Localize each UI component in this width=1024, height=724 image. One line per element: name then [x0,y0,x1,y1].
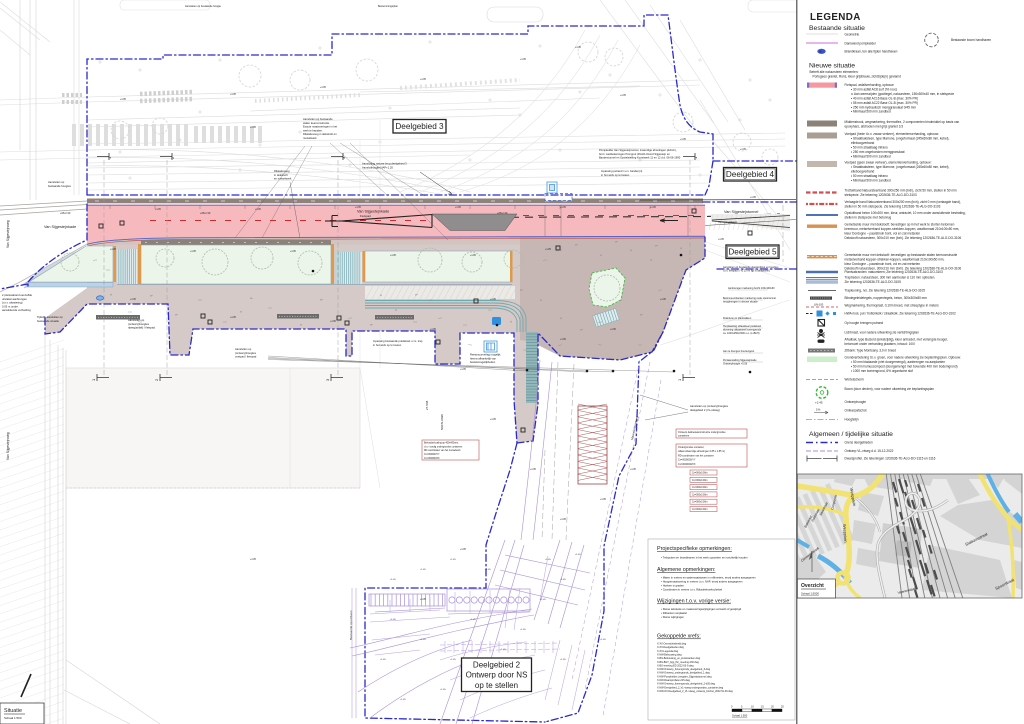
svg-text:+1.05: +1.05 [560,339,567,341]
svg-text:Situatie: Situatie [4,708,22,714]
svg-text:Damwand pompkelder: Damwand pompkelder [845,41,876,45]
svg-text:aansluitende verharding: aansluitende verharding [2,308,31,312]
svg-text:Brandkraan, ten alle tijden ha: Brandkraan, ten alle tijden handhaven [845,50,898,54]
svg-text:Reetonuurverlag mogelijk: Reetonuurverlag mogelijk [470,353,501,357]
svg-text:Voetpad (geen zwaar verkeer),: Voetpad (geen zwaar verkeer), elementenv… [845,161,932,165]
svg-text:+1.05: +1.05 [230,317,237,319]
svg-text:Aansluiten op (ontwerp)hoogtes: Aansluiten op (ontwerp)hoogtes [690,404,729,408]
svg-text:Trottoirband Natuursteenband 3: Trottoirband Natuursteenband 300x250 mm … [845,189,958,193]
svg-text:Portaanstelling Sijgestejnkade: Portaanstelling Sijgestejnkade [723,359,757,362]
svg-text:Van Sijgestejntunnel: Van Sijgestejntunnel [724,210,758,214]
svg-text:+1.05: +1.05 [110,249,117,251]
svg-text:RD-coordinaten van het metselw: RD-coordinaten van het metselwerk [424,449,461,452]
svg-text:+1.05: +1.05 [560,519,567,521]
svg-text:stalen keerconstructie.: stalen keerconstructie. [303,121,330,125]
svg-text:+1.05: +1.05 [460,369,467,371]
svg-text:Deelgebied 3: Deelgebied 3 [395,122,444,131]
svg-text:• Coordinaten in meters t.o.v: • Coordinaten in meters t.o.v. Rijksdrie… [661,588,722,592]
svg-text:• 50 mm straatlaag infrano: • 50 mm straatlaag infrano [851,174,888,178]
svg-text:X-BG-meeting ED 2022-03-9.dwg: X-BG-meeting ED 2022-03-9.dwg [657,664,694,667]
svg-text:Aansluiten op bestaande: Aansluiten op bestaande [303,117,333,121]
svg-text:Van Sijgestejnweg: Van Sijgestejnweg [6,432,10,460]
svg-text:+1.45: +1.45 [450,559,456,561]
svg-text:Betreft alle natuursteen eleme: Betreft alle natuursteen elementen: [810,70,859,74]
svg-text:X-NW-Bebouwing.dwg: X-NW-Bebouwing.dwg [657,653,682,656]
svg-text:+1.45: +1.45 [545,559,551,561]
svg-text:Van Sijgestejnweg: Van Sijgestejnweg [6,220,10,248]
svg-text:27-568: 27-568 [425,400,429,410]
svg-text:(ontwerp)hoogtes: (ontwerp)hoogtes [128,322,150,326]
svg-text:+1.05: +1.05 [355,207,362,209]
svg-text:1: 1 [677,378,682,381]
svg-text:Maanderbuurtweg: Maanderbuurtweg [630,415,639,440]
svg-text:Verlaagde band Natuursteenband: Verlaagde band Natuursteenband 300x200 m… [845,200,962,204]
svg-text:+1.05: +1.05 [290,251,297,253]
svg-text:+1.05: +1.05 [430,329,437,331]
svg-text:Pompkelder Van Sijgestejntunne: Pompkelder Van Sijgestejntunnel, inwendi… [599,148,677,152]
svg-text:Ondergrondse container,: Ondergrondse container, [678,446,705,449]
svg-text:X-NW-Dwarsprofielen-NS.dwg: X-NW-Dwarsprofielen-NS.dwg [657,679,691,682]
svg-text:terugbrengen in nieuwe situati: terugbrengen in nieuwe situatie [723,301,758,304]
svg-text:Nieuwe situatie: Nieuwe situatie [809,63,855,70]
svg-text:• Hoogtemaatvoering in meters: • Hoogtemaatvoering in meters t.o.v. NAP… [661,580,743,584]
svg-text:Zie tekening 1202636-TE-ALG-DO: Zie tekening 1202636-TE-ALG-DO-3105 [845,280,902,284]
svg-text:• 40 mm asfalt AC16 Base OL-: • 40 mm asfalt AC16 Base OL-B (max. 30% … [851,96,918,100]
svg-text:Op hoogte brengen putrand: Op hoogte brengen putrand [845,321,884,325]
svg-text:• 50 mm straatlaag infrano: • 50 mm straatlaag infrano [851,145,888,149]
svg-text:Dilatatievoeg in dekslooft en: Dilatatievoeg in dekslooft en [303,132,337,136]
svg-text:Deelgebied 5: Deelgebied 5 [728,248,777,257]
svg-text:+1.05: +1.05 [120,99,127,101]
svg-text:Behoudsel paling op 400x400mm,: Behoudsel paling op 400x400mm, [424,443,459,445]
svg-text:Aansluiten op: Aansluiten op [48,180,65,184]
svg-text:keermuur, metselverband koppen: keermuur, metselverband koppen-strekken-… [845,227,960,231]
svg-text:Dekslooft natuursteen, 300x210: Dekslooft natuursteen, 300x210 mm (bxh).… [845,236,962,240]
svg-text:Gekoppelde xrefs:: Gekoppelde xrefs: [657,634,701,640]
svg-text:epoxyhars, afstrooien met grij: epoxyhars, afstrooien met grijs graniet … [845,125,904,129]
svg-text:+1.45: +1.45 [520,629,526,631]
svg-text:Cx=000x0.00m: Cx=000x0.00m [692,502,708,504]
svg-text:Aansluiten op bestaande vloeis: Aansluiten op bestaande vloeistofgoot en… [723,266,779,269]
svg-text:Gemetselde muur met dekslooft:: Gemetselde muur met dekslooft: bevestige… [845,253,958,257]
svg-text:+1.05: +1.05 [470,255,477,257]
svg-text:+1.05: +1.05 [600,499,607,501]
svg-text:+1.05: +1.05 [320,87,327,89]
svg-text:+1.45: +1.45 [420,569,426,571]
svg-text:Overgangsband: Overgangsband [718,220,737,224]
svg-text:• Kleine wijzigingen: • Kleine wijzigingen [661,615,685,619]
svg-text:Projectspecifieke opmerkingen:: Projectspecifieke opmerkingen: [657,546,732,552]
svg-text:+1.05: +1.05 [250,559,257,561]
svg-text:Br: Br [819,49,822,53]
svg-text:Afvalbak, type Buizerd (enkelz: Afvalbak, type Buizerd (enkelzijdig), kl… [845,338,948,342]
svg-text:Algemeen / tijdelijke situatie: Algemeen / tijdelijke situatie [809,431,893,438]
svg-text:metselwerk: metselwerk [303,136,317,140]
svg-text:+1.05: +1.05 [520,59,527,61]
svg-text:Schaal 1:500: Schaal 1:500 [732,714,748,718]
svg-text:• 250 mm hydraulisch menggra: • 250 mm hydraulisch menggranulaat 0/45 … [851,105,916,109]
svg-text:+68-2.30: +68-2.30 [497,211,508,215]
svg-text:0.05 m onder: 0.05 m onder [2,304,18,308]
svg-text:• 50 mm bladaarde (niet door: • 50 mm bladaarde (niet doorgemengd), aa… [851,360,945,364]
svg-text:• 30 mm asfalt AC8 surf 3% r: • 30 mm asfalt AC8 surf 3% rood, [851,87,897,91]
svg-text:Gemetselde muur met dekslooft:: Gemetselde muur met dekslooft: bevestige… [845,223,955,227]
svg-text:Grens deelgebieden: Grens deelgebieden [845,441,874,445]
svg-text:Voetpad (hede t.b.v. zwaar ver: Voetpad (hede t.b.v. zwaar verkeer), ele… [845,132,940,136]
svg-text:Aansluiten op: Aansluiten op [128,318,145,322]
svg-text:Cx=000x0.00m: Cx=000x0.00m [692,473,708,475]
svg-text:Trapleuning, rvs. Zie tekening: Trapleuning, rvs. Zie tekening 1202636-T… [845,289,926,293]
svg-text:+1.05: +1.05 [490,419,497,421]
svg-text:Cx=0000000/YY: Cx=0000000/YY [678,459,696,462]
svg-text:Ontwerphoogte: Ontwerphoogte [845,400,867,404]
svg-text:(ontwerp)hoogtes: (ontwerp)hoogtes [235,351,257,355]
svg-text:+1.45: +1.45 [390,619,396,621]
svg-text:elleboogverband: elleboogverband [851,169,874,173]
svg-text:• Minimaal 500 mm zandbed: • Minimaal 500 mm zandbed [851,110,891,114]
svg-text:+1.45: +1.45 [400,699,406,701]
svg-text:stellen in 50 mm stelspecie. Z: stellen in 50 mm stelspecie. Zie tekenin… [845,205,941,209]
svg-text:+1.05: +1.05 [650,207,657,209]
svg-text:X-NW-Ontwerp_ondergronds_deelg: X-NW-Ontwerp_ondergronds_deelgebied_1.dw… [657,672,710,675]
svg-text:Schaal 1:5000: Schaal 1:5000 [801,592,819,596]
svg-text:Cx=0000000/XX: Cx=0000000/XX [678,463,696,466]
svg-text:+1.45: +1.45 [575,554,581,556]
svg-text:bestekmogelijkheden: bestekmogelijkheden [470,360,496,364]
svg-text:X-XX-Deelgebieden.dwg: X-XX-Deelgebieden.dwg [657,646,684,649]
svg-text:Wijzigingen t.o.v. vorige vers: Wijzigingen t.o.v. vorige versie: [657,599,731,605]
svg-text:en metselwerk: en metselwerk [274,177,292,181]
svg-text:Geometrie: Geometrie [845,32,860,36]
svg-text:Ontwerp door NS: Ontwerp door NS [466,671,528,680]
svg-text:bestaande hoogtes: bestaande hoogtes [48,184,72,188]
svg-text:(t.o.v. afwatering): (t.o.v. afwatering) [2,301,23,305]
svg-text:•• Aan weerszijden (goot: •• Aan weerszijden (goottegel, natuurste… [851,92,954,96]
svg-text:in dekslooft: in dekslooft [274,173,288,177]
svg-text:Bestaande situatie: Bestaande situatie [809,25,865,32]
svg-text:Fietspad, asfaltverharding, op: Fietspad, asfaltverharding, opbouw: [845,83,895,87]
svg-text:Herplaatsing uitlaatsteel putd: Herplaatsing uitlaatsteel putdeksel [723,325,762,328]
svg-text:+2.45: +2.45 [815,401,823,405]
svg-text:op te stellen: op te stellen [475,681,518,690]
svg-text:Aanbrengen markering bocht 100: Aanbrengen markering bocht 100x100x30 [728,287,775,290]
svg-text:Cx=000000/XX: Cx=000000/XX [424,458,440,460]
svg-text:Betonneembanken markering oude: Betonneembanken markering oude spoortunn… [723,297,776,300]
svg-text:Cx=000x0.00m: Cx=000x0.00m [692,509,708,511]
svg-text:• Maten in meters en watermaa: • Maten in meters en watermaatstaven in … [661,576,756,580]
svg-text:uitvlakel aanbrengen: uitvlakel aanbrengen [2,297,27,301]
svg-text:Grondverbetering t.b.v. groen,: Grondverbetering t.b.v. groen, voor nade… [845,356,962,360]
svg-text:X-NW-Ontwerp_bovengronds_deelg: X-NW-Ontwerp_bovengronds_deelgebied_3.dw… [657,668,711,671]
svg-text:• 55 mm asfalt AC22 Base OL-: • 55 mm asfalt AC22 Base OL-B (max. 30% … [851,101,918,105]
svg-text:+1.05: +1.05 [620,95,627,97]
svg-text:Cx=000x0.00m: Cx=000x0.00m [692,480,708,482]
svg-text:+1.05: +1.05 [455,207,462,209]
svg-text:Cx=000000/YY: Cx=000000/YY [424,454,440,456]
svg-text:X-XX-Legenda.dwg: X-XX-Legenda.dwg [657,650,679,653]
svg-text:+1.45: +1.45 [470,619,476,621]
svg-text:werk te bepalen.: werk te bepalen. [303,128,323,132]
svg-text:+1.05: +1.05 [660,299,667,301]
svg-text:Cx=000x0.00m: Cx=000x0.00m [692,494,708,496]
svg-text:X-NW-Pompkelder_bergater_Sijge: X-NW-Pompkelder_bergater_Sijgestejntunne… [657,675,712,678]
svg-text:+1.45: +1.45 [600,639,606,641]
svg-text:• Straatbaksteen, type Marro: • Straatbaksteen, type Marrone, (ongefor… [851,165,949,169]
svg-text:1%: 1% [816,408,821,412]
svg-text:metselverband koppen-strekken-: metselverband koppen-strekken-koppen, wa… [845,257,945,261]
svg-text:+1.45: +1.45 [485,569,491,571]
svg-text:Aansluiting nieuwe brug deelge: Aansluiting nieuwe brug deelgebied 3 [362,162,407,166]
svg-text:Aan te brengen buurtengoot: Aan te brengen buurtengoot [723,350,754,353]
svg-text:+1.05: +1.05 [610,329,617,331]
svg-text:+1.45: +1.45 [440,689,446,691]
svg-text:t.o.v. fietspad x +0.10 en lig: t.o.v. fietspad x +0.10 en ligt in (akkp… [723,270,770,273]
svg-text:+1.05: +1.05 [545,249,552,251]
svg-text:+1.05: +1.05 [680,139,687,141]
svg-text:+1.05: +1.05 [330,321,337,323]
svg-text:+1.05: +1.05 [255,209,262,211]
svg-text:in het werk op te lossen: in het werk op te lossen [601,173,630,177]
svg-text:+1.45: +1.45 [380,659,386,661]
svg-text:voetpad / fietspad: voetpad / fietspad [235,355,257,359]
svg-text:+1.05: +1.05 [740,149,747,151]
svg-text:Bestaande boom handhaven: Bestaande boom handhaven [951,38,991,42]
svg-text:Drainleren in plantvakken: Drainleren in plantvakken [723,317,752,320]
svg-text:hierna afhankelijk van: hierna afhankelijk van [470,356,497,360]
svg-text:Wortelscherm: Wortelscherm [845,378,865,382]
svg-text:Ontwerp VL-vtweg d.d. 15-12-20: Ontwerp VL-vtweg d.d. 15-12-2022 [845,449,894,453]
svg-text:uitlaat uitwendige afmetingen: uitlaat uitwendige afmetingen 0.85 x 1.8… [678,450,725,453]
svg-text:X-XX-Overzichtsbeeld.dwg: X-XX-Overzichtsbeeld.dwg [657,643,687,646]
svg-text:+68-2.30: +68-2.30 [200,211,211,215]
svg-text:RD-coordinaten van het contain: RD-coordinaten van het container [678,454,714,457]
svg-text:containers: containers [678,434,690,437]
svg-text:Fietspad: Fietspad [360,214,371,218]
svg-text:• Trekputten en brandkranen i: • Trekputten en brandkranen in het werk … [661,556,748,560]
svg-text:• Zitbanken verplaatst: • Zitbanken verplaatst [661,611,687,615]
svg-text:Van Sijgestejnkade: Van Sijgestejnkade [357,210,389,214]
svg-text:bestaande situatie: bestaande situatie [37,319,59,323]
svg-text:Ontwerphoogte +0.56: Ontwerphoogte +0.56 [723,363,748,366]
svg-text:+68-2.30: +68-2.30 [60,211,71,215]
svg-text:Traptreden: natuursteen, 300 m: Traptreden: natuursteen, 300 mm aantrede… [845,276,936,280]
svg-text:Schaal 1:500: Schaal 1:500 [4,716,22,720]
svg-text:stellen in stelspecie met beto: stellen in stelspecie met betonrug [845,216,892,220]
svg-text:Algemene opmerkingen:: Algemene opmerkingen: [657,567,715,573]
svg-text:2 plantvakrand eenzelfde: 2 plantvakrand eenzelfde [2,293,33,297]
svg-text:+1.05: +1.05 [490,299,497,301]
svg-text:+1.05: +1.05 [155,209,162,211]
svg-text:Aansluithoogte NAP+1.20: Aansluithoogte NAP+1.20 [362,165,393,169]
svg-text:+1.05: +1.05 [420,79,427,81]
svg-text:• Hoeken in graden: • Hoeken in graden [661,584,684,588]
svg-text:deelgebied 2 (VL-uitweg): deelgebied 2 (VL-uitweg) [690,408,720,412]
svg-text:Overzicht: Overzicht [801,583,824,589]
svg-text:+1.05: +1.05 [575,47,582,49]
svg-text:Aansluiten op: Aansluiten op [235,347,252,351]
svg-text:+1.05: +1.05 [630,469,637,471]
svg-text:+1.05: +1.05 [230,94,237,96]
svg-text:• Straatbaksteen, type Marro: • Straatbaksteen, type Marrone, (ongefor… [851,136,949,140]
svg-text:Deelgebied 2: Deelgebied 2 [473,660,521,669]
svg-text:Wegmarkering, thermoplast, 0,1: Wegmarkering, thermoplast, 0,10m breed, … [845,304,940,308]
svg-text:+1.05: +1.05 [530,469,537,471]
svg-text:Van Sijgestejnkade: Van Sijgestejnkade [44,225,76,229]
svg-text:+1.45: +1.45 [450,659,456,661]
svg-text:kleur Dordogne – paarsbruin bo: kleur Dordogne – paarsbruin bont, vol en… [845,262,921,266]
svg-text:afvoering uitlaatsteel bovengr: afvoering uitlaatsteel bovengronds [723,329,762,332]
svg-text:• 250 mm ongebonden menggran: • 250 mm ongebonden menggranulaat [851,150,905,154]
svg-text:Opsluitband beton 100x200 mm,: Opsluitband beton 100x200 mm, kleur, ant… [845,211,966,215]
svg-text:Inpassing bestaande putdeksel: Inpassing bestaande putdeksel i.v.m. tra… [373,339,423,343]
svg-text:Bandentunnel en Opstelstelling: Bandentunnel en Opstelstelling Kunstwerk… [599,156,681,160]
svg-text:Ontwerpafschot: Ontwerpafschot [845,409,867,413]
svg-text:+1.45: +1.45 [420,639,426,641]
svg-text:Aansluiten op bestaande hoogte: Aansluiten op bestaande hoogte [185,5,221,8]
svg-text:• Minimaal 500 mm zandbed: • Minimaal 500 mm zandbed [851,154,891,158]
svg-text:Middenstrook, wegmarkering, th: Middenstrook, wegmarkering, thermoflex, … [845,120,960,124]
svg-text:stelspecie. Zie tekening 12026: stelspecie. Zie tekening 1202636-TE-ALG-… [845,193,917,197]
svg-text:Exacte maatvoeringen in het: Exacte maatvoeringen in het [303,125,337,129]
svg-text:LIN-100: LIN-100 [814,303,824,307]
svg-text:kleur Dordogne – paarsbruin bo: kleur Dordogne – paarsbruin bont, vol en… [845,231,921,235]
svg-text:ca. 1000x250x1500 e.o. (LxBxH): ca. 1000x250x1500 e.o. (LxBxH) [723,332,760,335]
svg-text:X-NW-Ontwerp_bovengronds_deelg: X-NW-Ontwerp_bovengronds_deelgebied_2-d0… [657,683,716,686]
svg-text:NKFN-9698: NKFN-9698 [440,414,444,430]
svg-text:X-NW-Deelgebied_2_VL-vtweg-ond: X-NW-Deelgebied_2_VL-vtweg-ondergrondse_… [657,686,724,689]
svg-text:t.b.v. voedig ondergrondse con: t.b.v. voedig ondergrondse containers [424,445,463,448]
svg-text:LEGENDA: LEGENDA [810,12,861,23]
svg-text:+1.45: +1.45 [560,579,566,581]
svg-text:Dilatatievoeg: Dilatatievoeg [274,169,290,173]
svg-text:in het werk op te lossen: in het werk op te lossen [373,343,402,347]
svg-text:+1.45: +1.45 [500,649,506,651]
svg-text:Lichtmast, voor nadere uitwerk: Lichtmast, voor nadere uitwerking zie ve… [845,331,920,335]
svg-text:• 1000 mm bomengrond, 6% org: • 1000 mm bomengrond, 6% organische stof [851,369,913,373]
svg-text:Portugees graniet, Rons, kleur: Portugees graniet, Rons, kleur grijsblau… [813,75,902,79]
svg-text:• Kleine tekstuele en maatvoe: • Kleine tekstuele en maatvoeringswijzig… [661,607,742,611]
svg-text:+1.45: +1.45 [560,659,566,661]
svg-text:X-NW-OV-Deelgebied_2_VL-vtweg_: X-NW-OV-Deelgebied_2_VL-vtweg_ontwerp_bo… [657,690,733,693]
svg-text:X-BG-Bebouwing_en_kunstwerken.: X-BG-Bebouwing_en_kunstwerken.dwg [657,657,701,660]
svg-text:rijweg(asfalt) / fietspad: rijweg(asfalt) / fietspad [128,326,155,330]
svg-text:+1.05: +1.05 [130,299,137,301]
svg-text:Cx=000x0.00m: Cx=000x0.00m [692,487,708,489]
svg-text:• 50 mm humuscompost (doorge: • 50 mm humuscompost (doorgemengd met bo… [851,364,958,368]
svg-text:Blindegeleidetegels, noppenteg: Blindegeleidetegels, noppentegels, beton… [845,296,928,300]
svg-text:+1.05: +1.05 [250,127,257,129]
svg-text:bron: werktekeningen Pompput (: bron: werktekeningen Pompput (Pos01-Noor… [599,152,670,156]
svg-text:+1.05: +1.05 [390,255,397,257]
svg-text:+1.05: +1.05 [420,599,427,601]
svg-text:Tijdelijk aansluiten op: Tijdelijk aansluiten op [37,315,63,319]
svg-text:Boom (door derden), voor nader: Boom (door derden), voor nadere uitwerki… [845,387,935,391]
svg-text:Bestaande spoorbaan: Bestaande spoorbaan [349,610,353,640]
svg-text:+1.05: +1.05 [750,197,757,199]
svg-text:+1.05: +1.05 [190,251,197,253]
svg-text:Plantvakranden: natuursteen; Z: Plantvakranden: natuursteen; Zie tekenin… [845,270,944,274]
svg-text:Hoogtelijn: Hoogtelijn [845,418,859,422]
svg-text:elleboogverband: elleboogverband [851,141,874,145]
svg-text:X-BG-BGT_bgp_fbc_meeting-230.d: X-BG-BGT_bgp_fbc_meeting-230.dwg [657,661,700,664]
svg-text:+1.45: +1.45 [540,599,546,601]
svg-text:Zitbank: Type Montsany, 3,0 m: Zitbank: Type Montsany, 3,0 m breed [845,349,897,353]
svg-text:• Minimaal 500 mm zandbed: • Minimaal 500 mm zandbed [851,178,891,182]
svg-text:+1.05: +1.05 [718,239,725,241]
svg-text:+1.45: +1.45 [390,579,396,581]
svg-text:Deelgebied 4: Deelgebied 4 [726,170,775,179]
svg-text:+1.05: +1.05 [460,549,467,551]
svg-text:betonvoet onder verharding pla: betonvoet onder verharding plaatsen, inh… [845,342,915,346]
svg-text:Dwarsprofiel. Zie tekeningen 1: Dwarsprofiel. Zie tekeningen 1202636-TE-… [845,457,936,461]
svg-text:+1.05: +1.05 [560,207,567,209]
svg-text:Bestemmingsplan: Bestemmingsplan [378,5,398,8]
svg-text:Inpassing putrand i.v.m. bande: Inpassing putrand i.v.m. banden(n) [601,169,642,173]
svg-text:HWA riool, put / trottoirkolk: HWA riool, put / trottoirkolk / straatko… [845,312,957,316]
